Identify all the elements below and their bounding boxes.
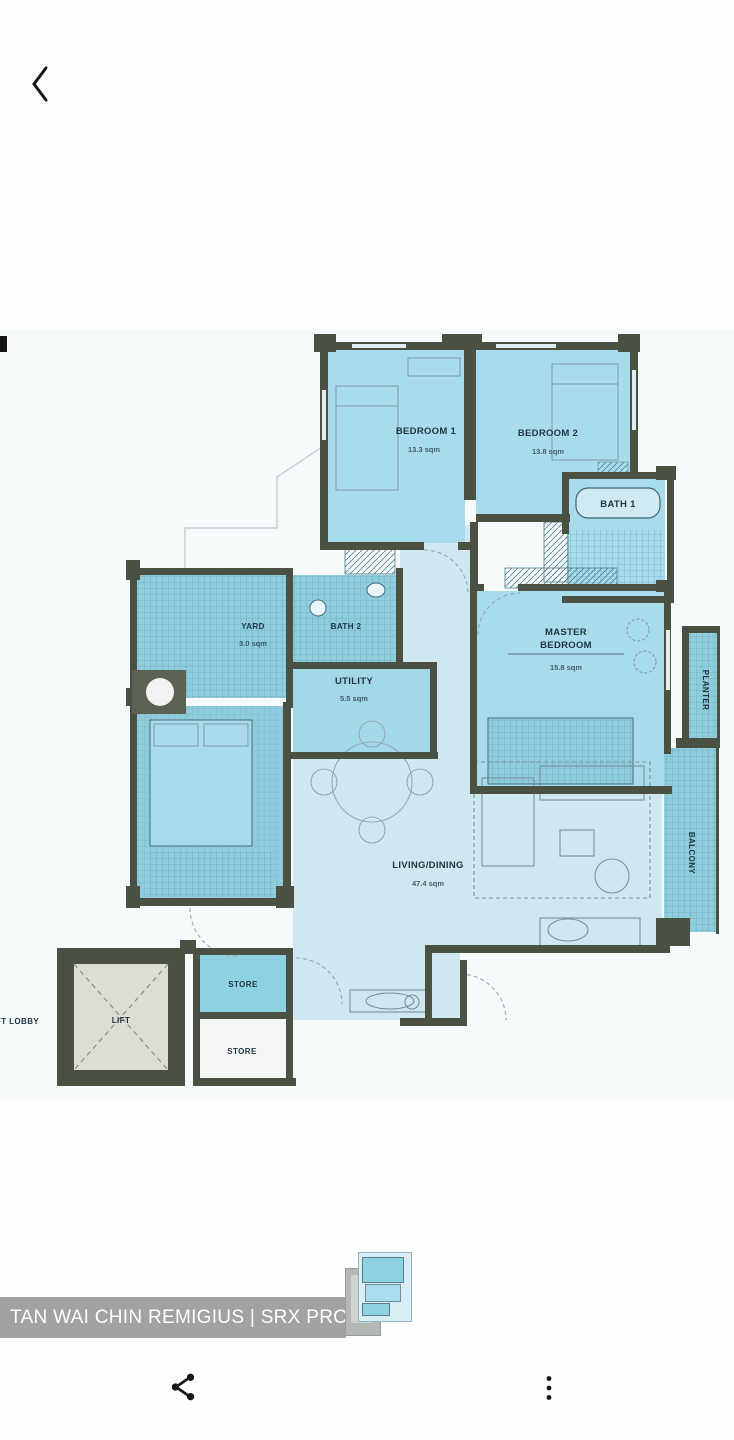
- share-button[interactable]: [159, 1363, 207, 1411]
- cabinet-hatch: [345, 546, 395, 574]
- label-bedroom1: BEDROOM 1: [396, 426, 457, 437]
- label-bedroom1-area: 13.3 sqm: [408, 445, 440, 454]
- floorplan-viewer-screen: BEDROOM 1 13.3 sqm BEDROOM 2 13.8 sqm BA…: [0, 0, 734, 1440]
- label-balcony: BALCONY: [687, 832, 696, 875]
- back-button[interactable]: [16, 60, 64, 108]
- room-bath2: [293, 575, 396, 662]
- label-utility: UTILITY: [335, 676, 373, 687]
- label-yard: YARD: [241, 622, 265, 631]
- more-options-button[interactable]: [525, 1364, 573, 1412]
- label-utility-area: 5.5 sqm: [340, 694, 368, 703]
- label-bedroom2-area: 13.8 sqm: [532, 447, 564, 456]
- label-master-line1: MASTER: [545, 627, 587, 638]
- washer-fixture: [146, 678, 174, 706]
- agent-watermark: TAN WAI CHIN REMIGIUS | SRX PROPERTY: [0, 1297, 346, 1338]
- label-planter: PLANTER: [701, 670, 710, 711]
- label-lift-lobby: LIFT LOBBY: [0, 1017, 39, 1026]
- label-master-line2: BEDROOM: [540, 640, 592, 651]
- label-living-dining: LIVING/DINING: [392, 860, 463, 871]
- label-living-area: 47.4 sqm: [412, 879, 444, 888]
- label-bath2: BATH 2: [331, 622, 362, 631]
- room-bedroom1: [328, 350, 465, 543]
- agent-watermark-text: TAN WAI CHIN REMIGIUS | SRX PROPERTY: [10, 1307, 346, 1328]
- label-bath1: BATH 1: [600, 499, 636, 510]
- label-yard-area: 3.0 sqm: [239, 639, 267, 648]
- room-maid: [137, 706, 283, 898]
- label-bedroom2: BEDROOM 2: [518, 428, 578, 439]
- left-edge-mark: [0, 336, 7, 352]
- chevron-left-icon: [31, 65, 49, 103]
- label-master-area: 15.8 sqm: [550, 663, 582, 672]
- label-store-upper: STORE: [228, 980, 258, 989]
- floor-plan-image[interactable]: BEDROOM 1 13.3 sqm BEDROOM 2 13.8 sqm BA…: [0, 330, 734, 1100]
- thumbnail-front-page: [358, 1252, 412, 1322]
- label-lift: LIFT: [112, 1016, 130, 1025]
- floorplan-thumbnail[interactable]: [343, 1252, 411, 1336]
- label-store-lower: STORE: [227, 1047, 257, 1056]
- more-vertical-icon: [546, 1375, 552, 1401]
- share-icon: [170, 1373, 196, 1401]
